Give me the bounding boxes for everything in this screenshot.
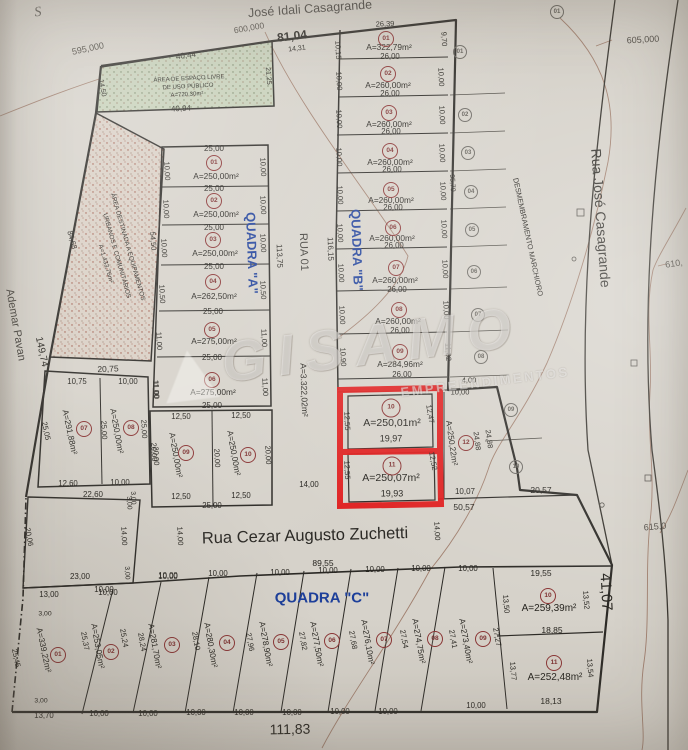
public-open-space-area (97, 41, 274, 112)
plat-drawing (0, 0, 688, 750)
plat-map-photo: SJosé Idali Casagrande595,000600,00081,0… (0, 0, 688, 750)
urban-equipment-area (50, 113, 164, 361)
survey-marks (572, 209, 651, 507)
street-jose-casagrande-lines (585, 0, 678, 750)
